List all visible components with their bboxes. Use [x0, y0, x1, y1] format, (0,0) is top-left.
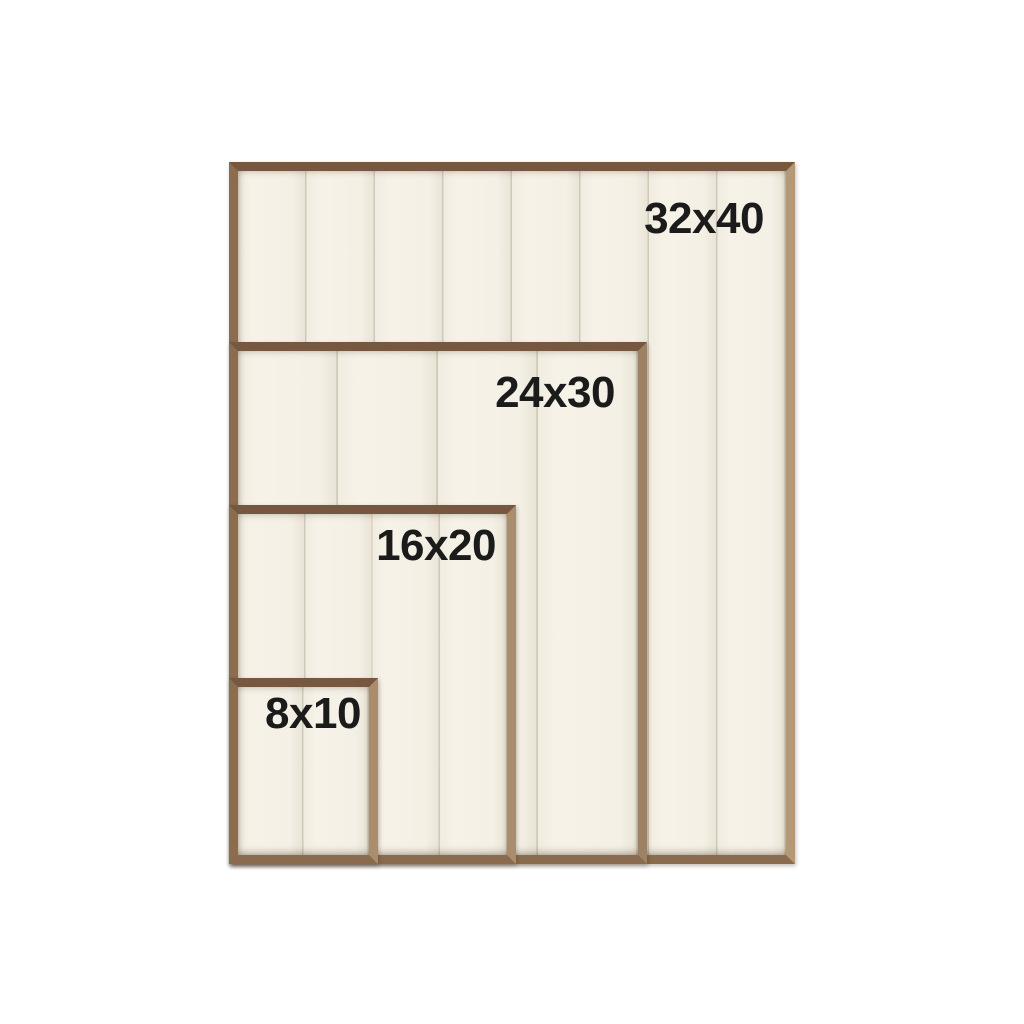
size-label-8x10: 8x10: [265, 692, 361, 736]
size-label-24x30: 24x30: [495, 371, 615, 415]
size-label-16x20: 16x20: [376, 524, 496, 568]
size-comparison-canvas: 32x40 24x30 16x20 8x10: [0, 0, 1024, 1024]
size-label-32x40: 32x40: [644, 197, 764, 241]
